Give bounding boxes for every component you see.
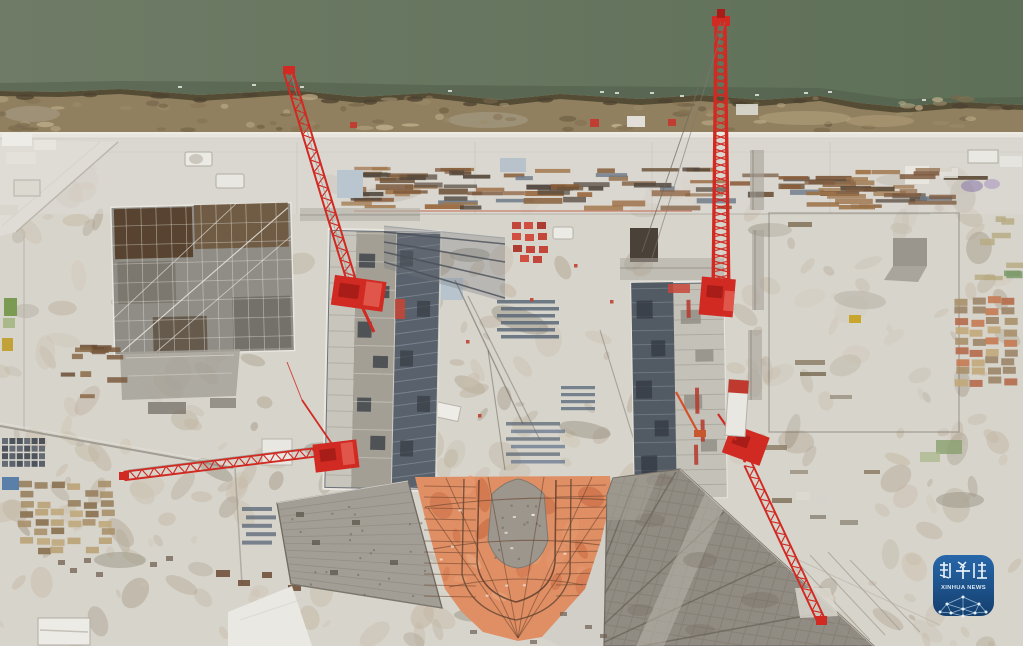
svg-text:XINHUA NEWS: XINHUA NEWS: [941, 585, 986, 591]
